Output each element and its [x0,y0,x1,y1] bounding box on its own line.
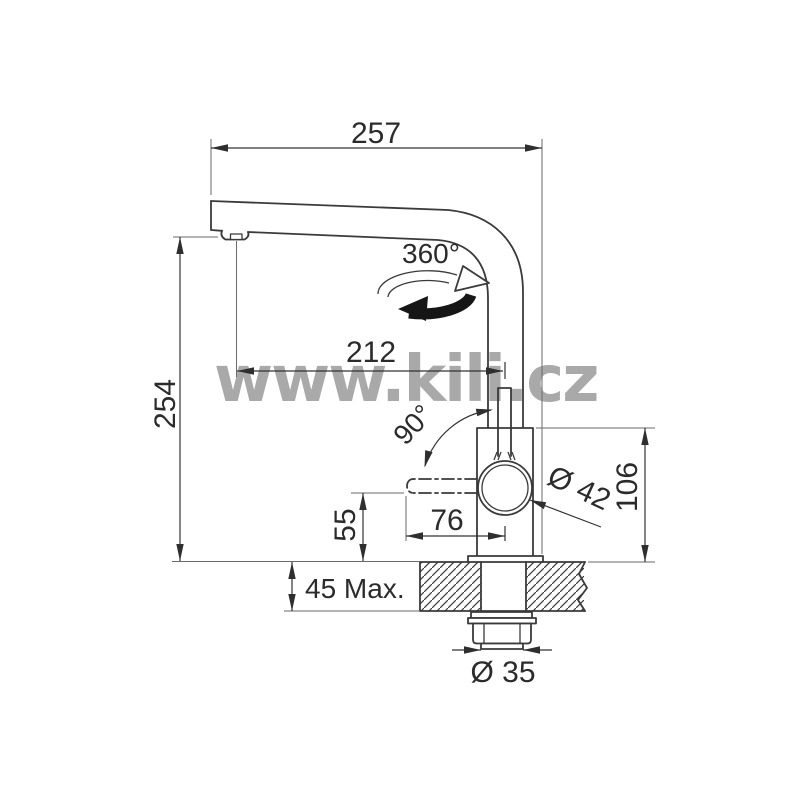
dim-lever-clearance: 55 [329,493,404,561]
counter-thickness-label: 45 Max. [305,573,405,604]
mounting-nut-body [473,624,531,644]
total-projection-label: 257 [351,117,401,150]
body-height-label: 106 [611,462,644,512]
countertop-hatch-right [526,562,584,611]
swivel-angle-label: 360° [402,238,460,269]
lever-length-label: 76 [430,504,463,537]
countertop [420,562,587,612]
technical-drawing-canvas: www.kili.cz [0,0,800,800]
watermark-text: www.kili.cz [214,343,597,417]
shank-collar [481,644,523,650]
base-flange [468,556,543,562]
mounting-hole-edges [481,562,526,612]
overall-height-label: 254 [149,379,182,429]
mounting-hardware [468,612,536,649]
dim-mounting-hole: Ø 35 [452,646,552,689]
mounting-hole-label: Ø 35 [470,656,535,689]
spout-tip [211,201,222,231]
ball-joint-outer [478,461,532,515]
dim-body-diameter: Ø 42 [530,460,615,527]
lever-horizontal-phantom [407,479,477,493]
rotation-arrow-icon [378,266,489,321]
swivel-annotation: 360° [378,238,489,321]
aerator-outlet [231,234,243,240]
spout-projection-label: 212 [346,336,396,369]
faucet-dimension-drawing: www.kili.cz [0,0,800,800]
countertop-hatch-left [420,562,481,611]
dim-counter-thickness: 45 Max. [284,562,420,611]
lever-clearance-label: 55 [329,508,362,541]
